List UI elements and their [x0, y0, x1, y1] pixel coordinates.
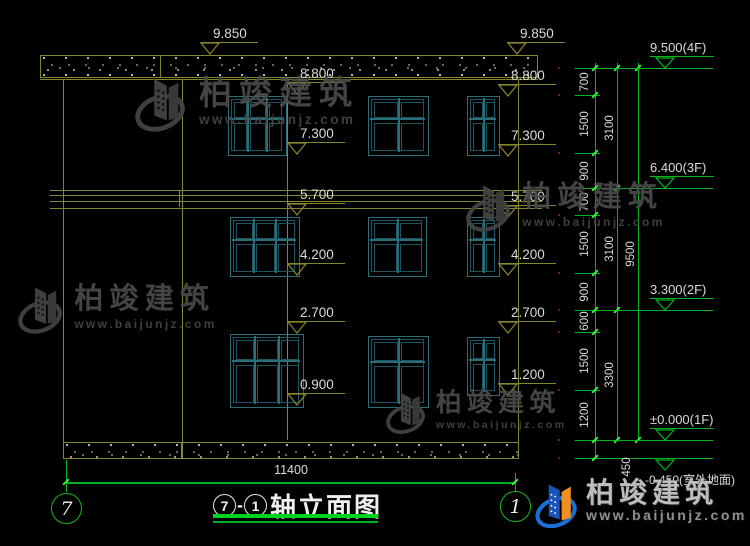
chain-dim-text: 700: [578, 58, 592, 106]
floor-level-label: ±0.000(1F): [650, 412, 714, 427]
floor-level-label: 3.300(2F): [650, 282, 706, 297]
watermark: 柏竣建筑www.baijunjz.com: [135, 74, 359, 141]
facade-level-label: 4.200: [511, 247, 545, 262]
defpoint-dot: [558, 152, 560, 154]
axis-bubble-7: 7: [51, 493, 82, 524]
level-mark-triangle-icon: [200, 42, 220, 55]
facade-level-label: 8.800: [511, 68, 545, 83]
level-mark-triangle-icon: [655, 298, 675, 310]
dim-line-chain: [595, 63, 596, 458]
window-pane: [401, 123, 424, 151]
level-mark-triangle-icon: [287, 321, 307, 334]
watermark: 柏竣建筑www.baijunjz.com: [466, 181, 665, 241]
watermark: 柏竣建筑www.baijunjz.com: [386, 389, 567, 442]
brand-logo: 柏竣建筑 www.baijunjz.com: [534, 478, 747, 528]
window-pane: [473, 343, 483, 359]
watermark-brand-text: 柏竣建筑: [74, 285, 217, 314]
level-mark-triangle-icon: [655, 428, 675, 440]
drawing-canvas: 9.8509.8508.8008.8007.3007.3005.7005.700…: [0, 0, 750, 546]
level-mark-triangle-icon: [498, 144, 518, 157]
level-mark-triangle-icon: [498, 84, 518, 97]
cad-elevation-drawing: 9.8509.8508.8008.8007.3007.3005.7005.700…: [0, 0, 750, 546]
watermark-url-text: www.baijunjz.com: [74, 317, 217, 331]
watermark-logo-icon: [386, 389, 428, 442]
drawing-title: 7 - 1 轴立面图: [213, 487, 382, 524]
brand-logo-url: www.baijunjz.com: [586, 507, 747, 523]
window-pane: [374, 244, 397, 272]
window-pane: [236, 365, 254, 403]
facade-level-label: 9.850: [213, 26, 247, 41]
level-mark-triangle-icon: [498, 263, 518, 276]
watermark-brand-text: 柏竣建筑: [436, 391, 567, 417]
window-transom: [232, 239, 296, 241]
chain-dim-text: 1200: [578, 391, 592, 439]
window-pane: [401, 102, 424, 118]
subtotal-dim-text: 3100: [603, 104, 617, 152]
watermark-url-text: www.baijunjz.com: [199, 112, 359, 127]
watermark-url-text: www.baijunjz.com: [522, 215, 665, 229]
window-pane: [236, 223, 253, 239]
facade-level-label: 2.700: [511, 305, 545, 320]
level-mark-triangle-icon: [507, 42, 527, 55]
level-mark-triangle-icon: [655, 458, 675, 470]
window-pane: [486, 123, 495, 151]
defpoint-dot: [558, 331, 560, 333]
window-pane: [473, 364, 483, 391]
facade-level-label: 5.700: [300, 187, 334, 202]
window-pane: [374, 102, 398, 118]
level-mark-triangle-icon: [287, 393, 307, 406]
title-underline-thin: [213, 521, 378, 523]
window-pane: [486, 244, 495, 272]
level-mark-triangle-icon: [498, 321, 518, 334]
window-pane: [374, 123, 398, 151]
watermark-brand-text: 柏竣建筑: [522, 183, 665, 212]
window-pane: [400, 244, 422, 272]
facade-level-label: 2.700: [300, 305, 334, 320]
window-pane: [374, 342, 398, 361]
bottom-dimension-text: 11400: [260, 463, 322, 477]
window-pane: [257, 365, 278, 403]
watermark-logo-icon: [135, 74, 189, 141]
facade-level-label: 9.850: [520, 26, 554, 41]
axis-stem-left: [66, 460, 67, 492]
window-pane: [473, 123, 483, 151]
bottom-dim-line: [66, 482, 515, 484]
chain-dim-text: 1500: [578, 100, 592, 148]
ground-strip: [63, 442, 519, 459]
level-mark-triangle-icon: [655, 56, 675, 68]
facade-level-label: 1.200: [511, 367, 545, 382]
window-pane: [400, 223, 422, 239]
window-pane: [374, 223, 397, 239]
window-pane: [256, 223, 275, 239]
facade-level-label: 7.300: [511, 128, 545, 143]
defpoint-dot: [558, 457, 560, 459]
window-pane: [473, 102, 483, 118]
window-pane: [486, 343, 495, 359]
defpoint-dot: [558, 67, 560, 69]
watermark-brand-text: 柏竣建筑: [199, 76, 359, 109]
level-mark-triangle-icon: [287, 142, 307, 155]
title-underline-thick: [213, 514, 378, 518]
facade-level-label: 4.200: [300, 247, 334, 262]
watermark: 柏竣建筑www.baijunjz.com: [18, 283, 217, 343]
window-pane: [236, 244, 253, 272]
level-mark-triangle-icon: [287, 263, 307, 276]
window-pane: [256, 244, 275, 272]
defpoint-dot: [558, 272, 560, 274]
window-pane: [486, 364, 495, 391]
brand-logo-text: 柏竣建筑: [586, 478, 747, 507]
window-pane: [257, 340, 278, 360]
window-pane: [236, 340, 254, 360]
window-pane: [278, 223, 295, 239]
watermark-logo-icon: [18, 283, 66, 343]
window-pane: [401, 342, 424, 361]
defpoint-dot: [558, 94, 560, 96]
window-pane: [486, 102, 495, 118]
title-text: 轴立面图: [270, 487, 382, 524]
watermark-url-text: www.baijunjz.com: [436, 419, 567, 431]
facade-level-label: 0.900: [300, 377, 334, 392]
floor-level-label: 9.500(4F): [650, 40, 706, 55]
axis-bubble-1: 1: [500, 491, 531, 522]
brand-logo-icon: [534, 478, 580, 528]
wall-left: [63, 80, 64, 458]
subtotal-dim-text: 3300: [603, 351, 617, 399]
defpoint-dot: [558, 309, 560, 311]
dim-line-total: [638, 63, 639, 440]
title-separator: -: [237, 495, 243, 516]
ground-strip-joint: [181, 442, 182, 458]
belt-course-joint: [179, 190, 180, 207]
floor-level-label: 6.400(3F): [650, 160, 706, 175]
window-pane: [281, 340, 299, 360]
level-mark-triangle-icon: [287, 203, 307, 216]
watermark-logo-icon: [466, 181, 514, 241]
chain-dim-text: 1500: [578, 337, 592, 385]
dim-line-subtotal: [617, 63, 618, 440]
window-pane: [473, 244, 483, 272]
window-transom: [232, 360, 300, 362]
